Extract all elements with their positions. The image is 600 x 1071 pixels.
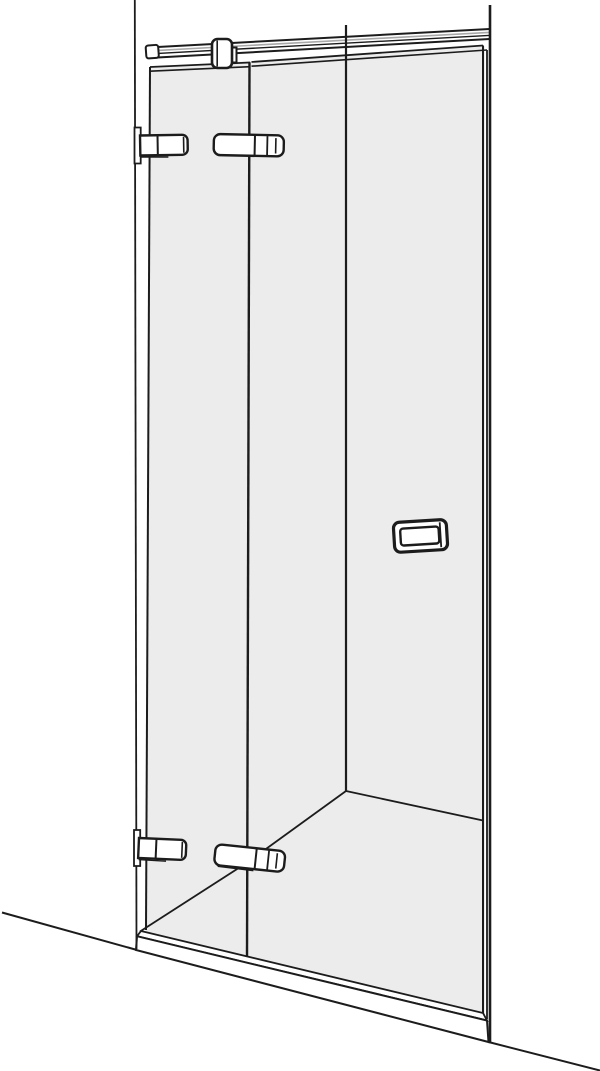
door-handle [393,519,448,552]
hinge-segment-line [156,839,157,858]
floor-line-right [489,1042,600,1071]
hinge-end-face [182,842,183,858]
hinge-shadow-line [141,157,169,158]
drawing-root [2,0,600,1071]
hinge-body [138,838,186,860]
support-bar-wall-end-cap [146,45,159,59]
floor-line-left [2,913,137,951]
bar-clamp-bracket [212,39,237,68]
hinge-body [214,134,284,156]
hinge-top-fold [214,134,284,156]
bar-clamp-body [212,39,232,68]
hinge-body [140,135,188,156]
shower-enclosure-illustration [0,0,600,1071]
shower-enclosure-drawing [0,0,600,1071]
door-handle-recess [400,526,439,545]
